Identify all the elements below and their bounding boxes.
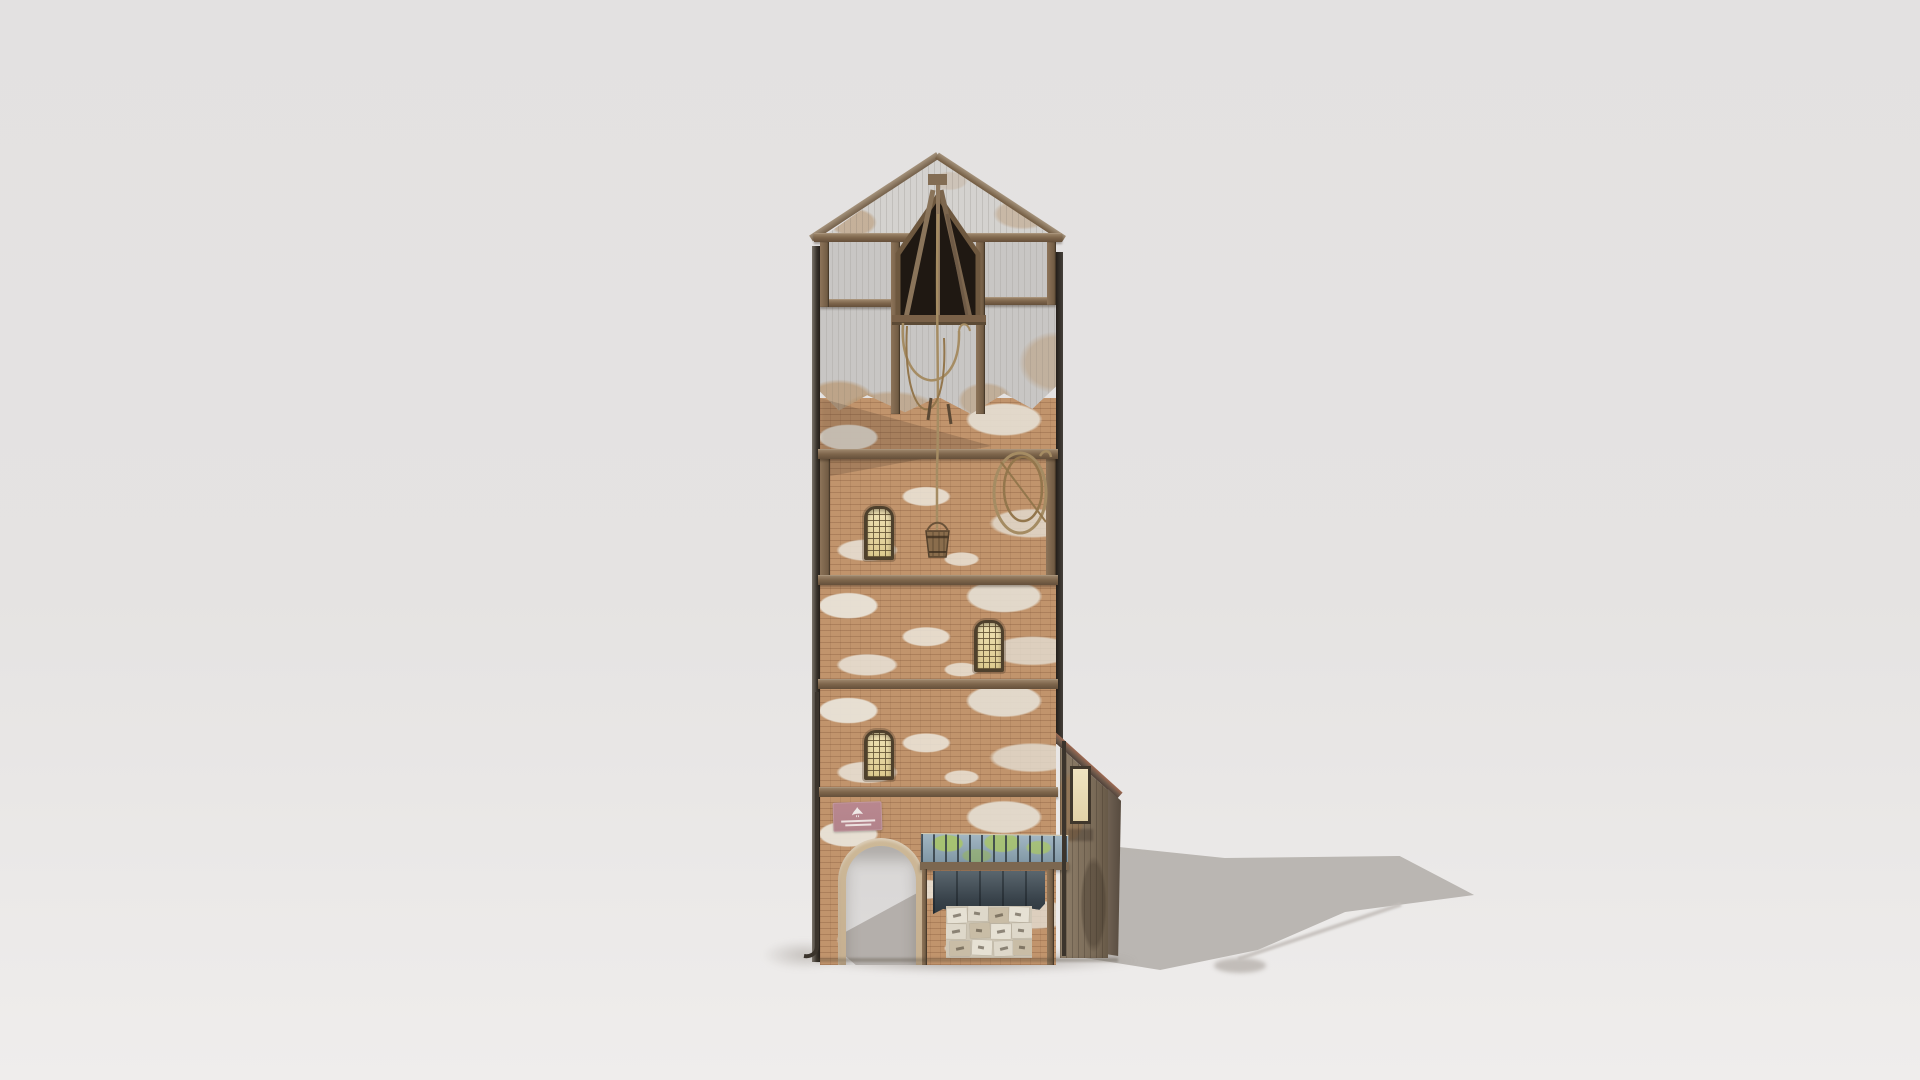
poster bbox=[950, 941, 970, 956]
loft-post-outer-left bbox=[820, 242, 829, 307]
base-shadow-line bbox=[816, 958, 1118, 962]
passage-soffit-shade bbox=[846, 846, 916, 965]
shed-window bbox=[1070, 766, 1091, 824]
plaster-loft-wall bbox=[820, 242, 1056, 414]
floor-beam-3 bbox=[818, 679, 1058, 689]
lattice-window-storey1 bbox=[864, 506, 894, 560]
eaves-beam bbox=[814, 233, 1062, 242]
shadow-blob bbox=[1214, 958, 1266, 973]
loft-post-outer-right bbox=[1047, 242, 1056, 305]
brick-wall-storey2 bbox=[820, 585, 1056, 679]
poster bbox=[946, 924, 966, 939]
shed-window-shade bbox=[1068, 829, 1093, 841]
loft-panel-beam-left bbox=[820, 299, 898, 307]
arch-passage-opening bbox=[846, 846, 916, 965]
sign-fine-print bbox=[845, 824, 871, 827]
sign-fine-print bbox=[841, 819, 875, 822]
poster bbox=[970, 923, 991, 939]
bird-icon bbox=[848, 804, 868, 820]
poster bbox=[1009, 907, 1030, 923]
loft-post-inner-right bbox=[976, 242, 985, 414]
loft-post-inner-left bbox=[891, 242, 900, 414]
poster-board bbox=[946, 906, 1032, 958]
lattice-window-storey3 bbox=[864, 730, 894, 780]
floor-beam-4 bbox=[818, 787, 1058, 797]
building-side-edge-left bbox=[812, 246, 820, 962]
poster bbox=[1013, 940, 1032, 955]
brick-wall-storey3 bbox=[820, 689, 1056, 787]
building-side-edge-right bbox=[1056, 252, 1063, 744]
lattice-window-storey2 bbox=[974, 620, 1004, 672]
render-scene bbox=[0, 0, 1920, 1080]
poster bbox=[989, 908, 1009, 923]
canopy-post-left bbox=[922, 869, 927, 965]
poster bbox=[994, 941, 1015, 957]
floor-beam-1 bbox=[818, 449, 1058, 459]
poster bbox=[991, 924, 1011, 939]
loft-panel-beam-right bbox=[978, 297, 1056, 305]
poster bbox=[972, 940, 993, 956]
canopy-post-right bbox=[1047, 869, 1054, 965]
floor-beam-2 bbox=[818, 575, 1058, 585]
poster bbox=[968, 906, 988, 921]
gable-siding bbox=[820, 156, 1056, 239]
shop-sign bbox=[833, 801, 883, 832]
poster bbox=[947, 908, 968, 924]
poster bbox=[1012, 923, 1032, 938]
